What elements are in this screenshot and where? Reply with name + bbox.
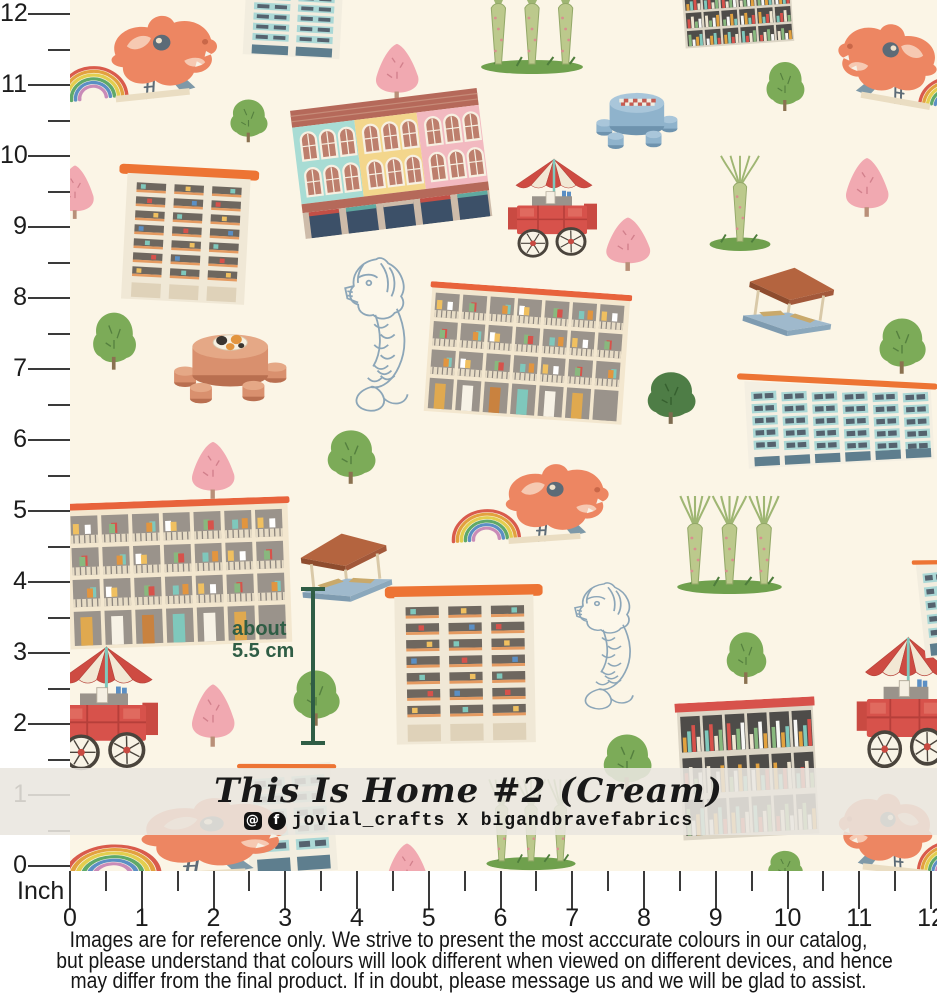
motif-chess-table — [592, 78, 680, 156]
ruler-tick-half — [392, 871, 394, 891]
ruler-tick-half — [105, 871, 107, 891]
motif-dragon-playground-top-right — [821, 4, 937, 127]
motif-food-cart-1 — [502, 152, 602, 259]
ruler-tick-major — [28, 84, 70, 86]
motif-supertrees-2 — [672, 488, 787, 596]
instagram-icon: @ — [244, 812, 262, 830]
ruler-tick-half — [48, 759, 70, 761]
ruler-tick-half — [607, 871, 609, 891]
motif-tree-dark-1 — [642, 368, 700, 426]
motif-dragon-playground-center — [445, 450, 621, 556]
ruler-tick-half — [894, 871, 896, 891]
ruler-tick-major — [28, 723, 70, 725]
ruler-tick-major — [28, 155, 70, 157]
motif-tree-pink-6 — [378, 838, 436, 871]
collab-line: @ f jovial_crafts X bigandbravefabrics — [244, 811, 693, 831]
ruler-tick-half — [48, 262, 70, 264]
ruler-tick-half — [464, 871, 466, 891]
product-title: This Is Home #2 (Cream) — [214, 773, 723, 809]
title-banner: This Is Home #2 (Cream) @ f jovial_craft… — [0, 768, 937, 835]
motif-food-cart-left-edge — [70, 638, 164, 772]
ruler-tick-half — [535, 871, 537, 891]
ruler-tick-major — [28, 652, 70, 654]
motif-tree-green-2 — [226, 96, 271, 144]
disclaimer-text: Images are for reference only. We strive… — [0, 930, 937, 992]
motif-merlion-2 — [572, 578, 652, 714]
ruler-tick-major — [28, 581, 70, 583]
ruler-unit-label: Inch — [17, 877, 64, 906]
disclaimer-line-3: may differ from the final product. If in… — [56, 971, 881, 992]
motif-round-table-cat — [168, 316, 290, 412]
measure-line — [298, 586, 328, 746]
motif-tree-pink-left-edge — [70, 160, 102, 220]
ruler-tick-half — [48, 475, 70, 477]
ruler-number: 3 — [0, 638, 27, 667]
motif-supertree-single — [702, 148, 778, 253]
ruler-number: 8 — [0, 283, 27, 312]
size-annotation-text: about 5.5 cm — [232, 618, 294, 746]
motif-shophouse — [288, 85, 495, 239]
motif-hdb-block-reference — [385, 583, 546, 748]
ruler-tick-major — [28, 13, 70, 15]
motif-tree-green-5 — [322, 426, 380, 486]
motif-tree-green-9 — [764, 848, 806, 871]
ruler-number: 0 — [0, 851, 27, 880]
ruler-number: 12 — [911, 904, 937, 933]
ruler-tick-major — [28, 439, 70, 441]
ruler-tick-half — [751, 871, 753, 891]
ruler-number: 12 — [0, 0, 27, 28]
ruler-tick-major — [28, 510, 70, 512]
ruler-tick-half — [822, 871, 824, 891]
motif-tree-green-4 — [874, 314, 930, 376]
ruler-tick-major — [28, 297, 70, 299]
ruler-tick-half — [48, 688, 70, 690]
motif-tree-green-3 — [88, 308, 140, 372]
ruler-tick-half — [48, 546, 70, 548]
motif-tree-green-6 — [722, 628, 770, 686]
motif-bookshelf-building-top-right — [680, 0, 796, 50]
motif-hdb-laundry-1 — [422, 281, 633, 427]
ruler-tick-half — [248, 871, 250, 891]
ruler-tick-half — [48, 120, 70, 122]
motif-supertrees-top — [476, 0, 588, 76]
motif-merlion-1 — [342, 252, 428, 417]
product-image: This Is Home #2 (Cream) @ f jovial_craft… — [0, 0, 937, 993]
fabric-swatch — [70, 0, 937, 871]
ruler-tick-half — [48, 617, 70, 619]
ruler-number: 7 — [0, 354, 27, 383]
ruler-number: 11 — [0, 70, 27, 99]
ruler-tick-half — [177, 871, 179, 891]
ruler-tick-half — [48, 49, 70, 51]
ruler-tick-major — [28, 865, 70, 867]
motif-tree-pink-3 — [596, 212, 660, 272]
ruler-number: 2 — [0, 709, 27, 738]
ruler-number: 10 — [0, 141, 27, 170]
size-annotation: about 5.5 cm — [232, 586, 328, 746]
ruler-number: 5 — [0, 496, 27, 525]
ruler-tick-major — [28, 226, 70, 228]
motif-tree-pink-4 — [182, 436, 244, 500]
collab-text: jovial_crafts X bigandbravefabrics — [292, 811, 693, 831]
motif-dragon-playground-top-left — [70, 0, 232, 117]
motif-pavilion-1 — [737, 256, 843, 345]
motif-hdb-teal-top — [236, 0, 350, 61]
ruler-tick-half — [320, 871, 322, 891]
motif-tree-green-1 — [762, 58, 808, 113]
ruler-number: 4 — [0, 567, 27, 596]
ruler-tick-half — [48, 404, 70, 406]
motif-tree-pink-2 — [836, 152, 898, 218]
ruler-number: 9 — [0, 212, 27, 241]
ruler-tick-major — [28, 368, 70, 370]
ruler-tick-half — [48, 191, 70, 193]
facebook-icon: f — [268, 812, 286, 830]
motif-hdb-block-1 — [112, 162, 259, 307]
ruler-number: 6 — [0, 425, 27, 454]
ruler-tick-half — [48, 333, 70, 335]
ruler-tick-half — [679, 871, 681, 891]
